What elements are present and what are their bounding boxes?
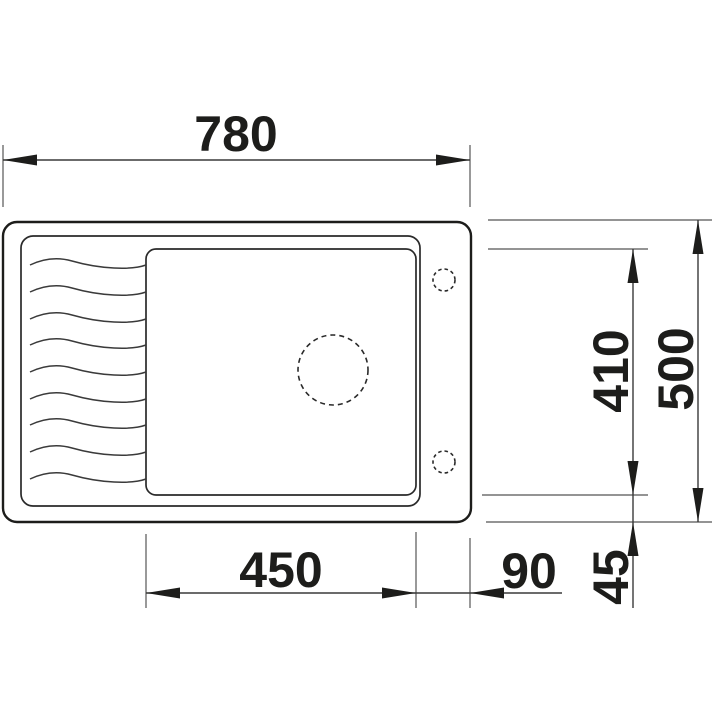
dimension-bowl-width: 450 90 — [146, 532, 562, 608]
wave-line — [30, 473, 146, 482]
tap-hole-top — [433, 269, 455, 291]
dim-label-bowl-width: 450 — [239, 542, 322, 598]
technical-drawing-canvas: 780 450 90 41 — [0, 0, 720, 720]
wave-line — [30, 286, 146, 295]
dim-label-right-offset: 90 — [501, 543, 557, 599]
dim-label-bottom-offset: 45 — [583, 549, 639, 605]
arrowhead-left — [146, 588, 180, 599]
wave-line — [30, 419, 146, 428]
arrowhead-offset — [470, 588, 504, 599]
arrowhead-up — [628, 249, 639, 283]
tap-hole-bottom — [433, 451, 455, 473]
arrowhead-up — [693, 220, 704, 254]
sink-bowl-outline — [146, 249, 416, 495]
sink-body — [3, 222, 471, 522]
arrowhead-right — [436, 155, 470, 166]
arrowhead-right — [382, 588, 416, 599]
wave-line — [30, 313, 146, 322]
arrowhead-left — [3, 155, 37, 166]
arrowhead-down — [628, 461, 639, 495]
dim-label-bowl-depth: 410 — [583, 329, 639, 412]
drainboard-waves — [30, 259, 146, 482]
wave-line — [30, 393, 146, 402]
sink-dimension-drawing: 780 450 90 41 — [0, 0, 720, 720]
dimension-total-width: 780 — [3, 106, 470, 207]
wave-line — [30, 259, 146, 268]
sink-outer-edge — [3, 222, 471, 522]
arrowhead-down — [693, 488, 704, 522]
drain-hole — [298, 335, 368, 405]
dim-label-total-depth: 500 — [648, 327, 704, 410]
dim-label-total-width: 780 — [194, 106, 277, 162]
wave-line — [30, 446, 146, 455]
wave-line — [30, 339, 146, 348]
wave-line — [30, 366, 146, 375]
